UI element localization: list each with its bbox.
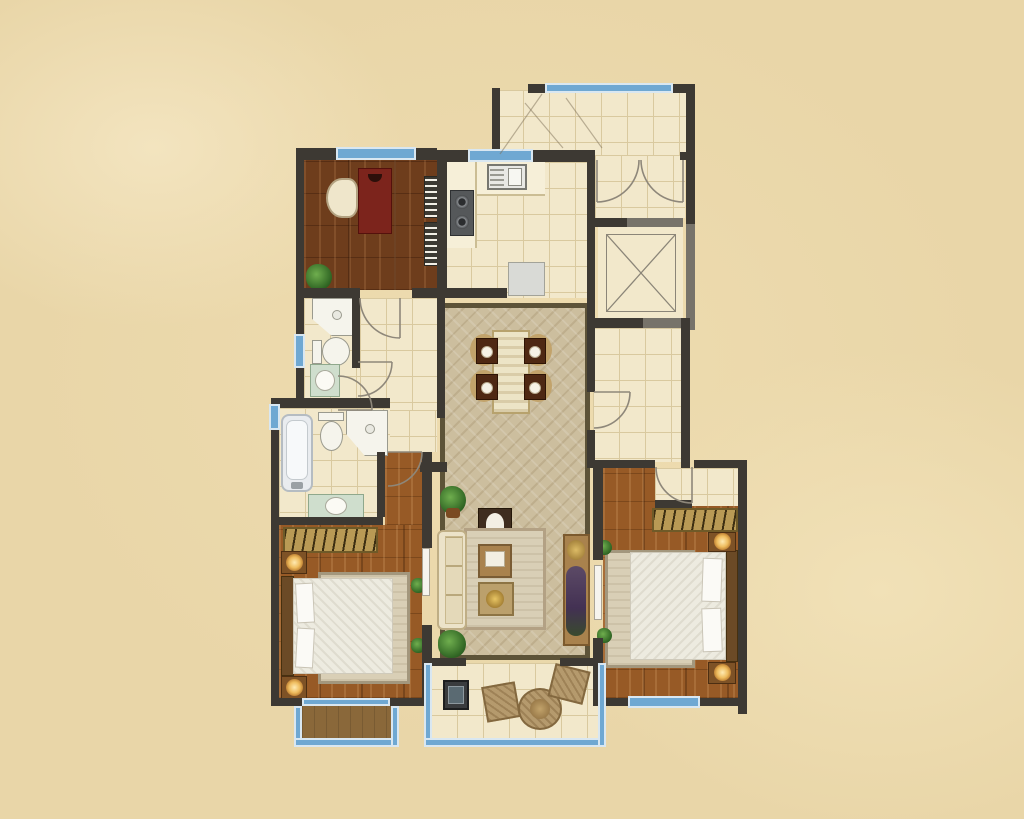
ottoman-gold-decor (486, 590, 504, 608)
bedroom-left-door-leaf (422, 548, 430, 596)
lamp-right-bottom (714, 664, 731, 681)
wall-elevator-bottom-right (643, 318, 683, 328)
wall-right-elevator (686, 224, 695, 330)
place-setting-2 (529, 346, 541, 358)
lamp-left-top (286, 554, 303, 571)
bed-left-pillow-1 (295, 583, 315, 624)
coffee-table-tray (485, 551, 505, 567)
living-plant-bottom (438, 630, 466, 658)
shower-lower-drain (365, 424, 375, 434)
wall-foyer-kitchen (587, 152, 595, 328)
wardrobe-right (652, 508, 738, 532)
wall-study-left (296, 148, 304, 298)
vanity-upper-basin (315, 370, 335, 391)
wall-corridor-dining-upper (587, 328, 595, 392)
wall-dining-left-upper (437, 298, 445, 418)
wardrobe-left (283, 527, 378, 553)
place-setting-4 (529, 382, 541, 394)
wall-bath-upper-right (352, 298, 360, 368)
window-balcony-left-door (302, 698, 390, 706)
wall-study-bottom-right (412, 288, 445, 298)
toilet-lower-bowl (320, 421, 343, 451)
wall-bath-lower-bottom (271, 517, 383, 525)
window-outer-left (269, 404, 280, 430)
wall-nook-bottom (655, 500, 692, 508)
hallway-floor (360, 298, 437, 410)
lamp-right-top (714, 533, 731, 550)
wall-bedroomR-right (738, 460, 747, 714)
window-bedroomR-bottom (628, 696, 700, 708)
wall-corridor-right (681, 318, 690, 468)
shower-upper-drain (332, 310, 342, 320)
bed-right-pillow-1 (701, 558, 723, 603)
wall-outer-left-lower (271, 398, 279, 706)
dining-chair-1 (476, 338, 498, 364)
washing-machine-lid (448, 686, 464, 704)
window-kitchen-top (468, 149, 533, 162)
wall-kitchen-bottom (445, 288, 507, 298)
wall-foyer-elevator-dark (595, 218, 627, 227)
window-study-top (336, 147, 416, 160)
living-plant-top-pot (446, 508, 460, 518)
toilet-upper-bowl (322, 337, 350, 366)
bed-left-pillow-2 (295, 628, 315, 669)
lamp-left-bottom (286, 679, 303, 696)
wall-living-bedroomR-upper (593, 460, 603, 560)
window-balcony-left-rail-right (391, 706, 399, 747)
balcony-chair-left (481, 681, 521, 722)
wall-bedroom-left-strip (377, 452, 385, 517)
wall-living-bottom-left (431, 658, 466, 666)
window-bath-upper-left (294, 334, 305, 368)
place-setting-3 (481, 382, 493, 394)
wall-entry-bottom-corner (680, 152, 695, 160)
dining-chair-2 (524, 338, 546, 364)
tv-cabinet-flowers (566, 566, 586, 636)
balcony-left-floor (302, 706, 392, 738)
sink-drainboard (490, 168, 504, 186)
window-balcony-main-rail-left (424, 663, 432, 747)
entry-hall-floor (497, 90, 687, 155)
bathtub-faucet (291, 482, 303, 489)
wall-corridor-dining-lower (587, 430, 595, 468)
dining-chair-4 (524, 374, 546, 400)
bed-right-pillow-2 (701, 608, 723, 653)
refrigerator (508, 262, 545, 296)
elevator-car-outline (606, 234, 676, 312)
wall-bedroomR-top-left (593, 460, 655, 468)
bathtub-inner (286, 420, 308, 480)
window-entry-top (545, 83, 673, 93)
dining-chair-3 (476, 374, 498, 400)
cooktop-burner-2 (455, 215, 469, 229)
tv-cabinet-vase (567, 540, 585, 560)
wall-bedroom-left-bottom-a (271, 698, 302, 706)
bedroom-right-door-leaf (594, 565, 602, 620)
wall-bath-divider (271, 398, 390, 408)
cooktop-burner-1 (455, 195, 469, 209)
hallway-floor-lower (383, 410, 437, 452)
floor-plan-canvas (0, 0, 1024, 819)
wall-study-bottom-left (296, 288, 360, 298)
wall-elevator-bottom-left (595, 318, 643, 328)
study-chair (326, 178, 358, 218)
sink-basin (508, 168, 522, 186)
wall-bedroom-left-right-upper (422, 452, 432, 548)
sofa-cushions (445, 536, 463, 624)
corridor-floor (593, 328, 681, 462)
toilet-lower-tank (318, 412, 344, 421)
place-setting-1 (481, 346, 493, 358)
toilet-upper-tank (312, 340, 322, 364)
bedroom-left-entry-strip (385, 452, 422, 525)
entry-foyer-floor (595, 155, 685, 218)
wall-study-kitchen (437, 150, 447, 298)
window-balcony-main-rail-bottom (424, 738, 606, 747)
window-balcony-left-rail-bottom (294, 738, 399, 747)
vanity-lower-basin (325, 497, 347, 515)
window-balcony-main-rail-right (598, 663, 606, 747)
bed-right-headboard (726, 550, 738, 662)
study-plant (306, 264, 332, 290)
balcony-table-center (530, 699, 550, 719)
